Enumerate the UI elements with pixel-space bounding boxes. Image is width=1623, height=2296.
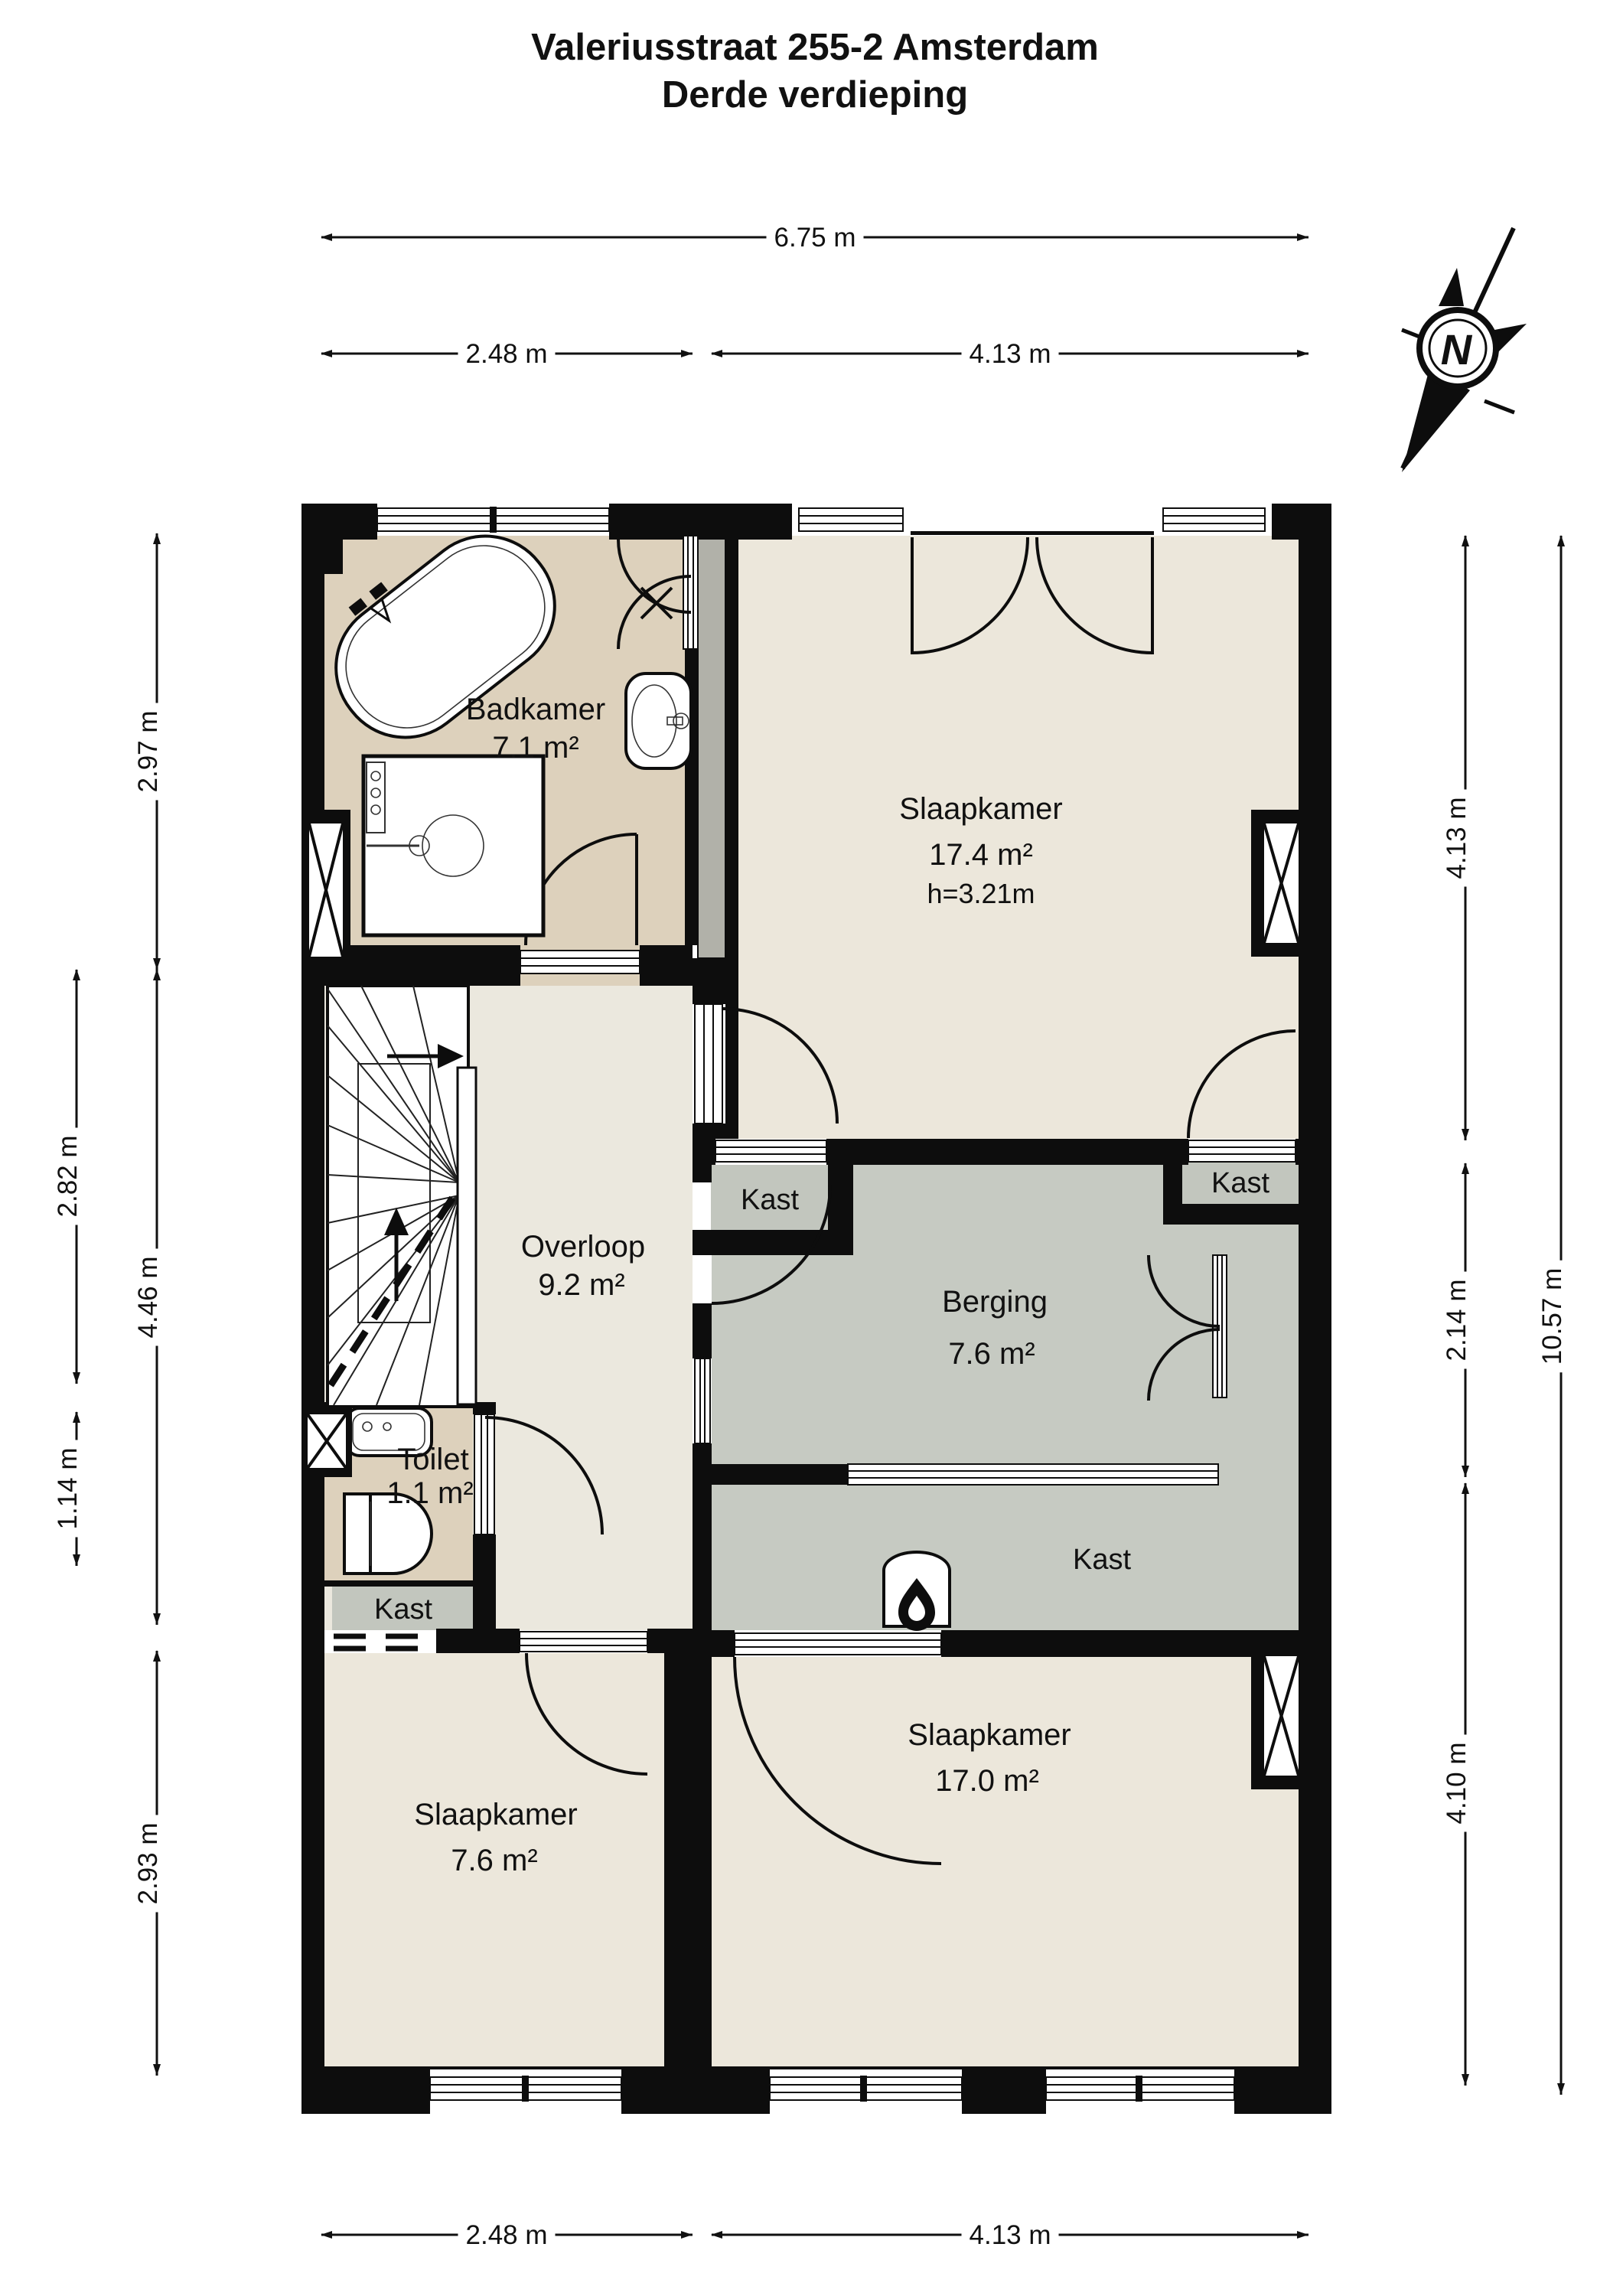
berging-area: 7.6 m² (948, 1337, 1035, 1371)
dim-bottom-right: 4.13 m (970, 2220, 1051, 2250)
bathroom-sink (626, 673, 691, 768)
kast-dashed-front (334, 1636, 438, 1649)
slaapkamer-left-area: 7.6 m² (451, 1844, 537, 1877)
kast-top-left-label: Kast (741, 1184, 799, 1216)
badkamer-label: Badkamer (466, 693, 605, 726)
toilet-label: Toilet (397, 1443, 468, 1476)
kast-berging-label: Kast (1073, 1544, 1131, 1576)
dim-left-mid: 4.46 m (133, 1257, 163, 1339)
overloop-area: 9.2 m² (538, 1268, 624, 1302)
page-title: Valeriusstraat 255-2 Amsterdam Derde ver… (531, 27, 1099, 116)
badkamer-area: 7.1 m² (492, 731, 578, 765)
boiler (884, 1552, 950, 1631)
shaft-right-top (1251, 810, 1301, 957)
dim-right-top: 4.13 m (1442, 797, 1471, 879)
floor-plan-page: Valeriusstraat 255-2 Amsterdam Derde ver… (0, 0, 1623, 2296)
toilet-area: 1.1 m² (386, 1476, 473, 1510)
dim-right-mid: 2.14 m (1442, 1280, 1471, 1362)
kast-bottom-left-label: Kast (374, 1593, 432, 1626)
shaft-right-bottom (1251, 1642, 1301, 1789)
dim-left-outer-top: 2.82 m (53, 1136, 83, 1218)
stair-handrail (458, 1068, 476, 1404)
dim-top-left: 2.48 m (466, 339, 548, 369)
dim-top-right: 4.13 m (970, 339, 1051, 369)
slaapkamer-right-area: 17.0 m² (935, 1764, 1039, 1798)
dim-left-outer-bottom: 1.14 m (53, 1448, 83, 1530)
slaapkamer-left-label: Slaapkamer (414, 1798, 577, 1831)
shaft-left-stairs (301, 810, 350, 970)
slaapkamer-top-label: Slaapkamer (899, 792, 1062, 826)
floor-plan-drawing: Valeriusstraat 255-2 Amsterdam Derde ver… (0, 0, 1623, 2296)
slaapkamer-top-area: 17.4 m² (929, 838, 1033, 872)
compass-rose: N (1402, 228, 1527, 472)
title-line-1: Valeriusstraat 255-2 Amsterdam (531, 27, 1099, 68)
berging-label: Berging (942, 1285, 1048, 1319)
staircase (328, 986, 476, 1407)
dim-left-top: 2.97 m (133, 711, 163, 793)
shower (363, 756, 543, 935)
slaapkamer-top-height: h=3.21m (927, 878, 1035, 909)
overloop-label: Overloop (521, 1230, 645, 1264)
dim-bottom-left: 2.48 m (466, 2220, 548, 2250)
slaapkamer-top-floor (738, 536, 1299, 1139)
dim-top-total: 6.75 m (774, 223, 856, 253)
shaft-left-toilet (301, 1405, 352, 1477)
slaapkamer-right-label: Slaapkamer (908, 1718, 1071, 1752)
duct-channel (698, 536, 725, 958)
title-line-2: Derde verdieping (662, 74, 968, 116)
kast-top-right-label: Kast (1211, 1167, 1269, 1199)
dim-right-bottom: 4.10 m (1442, 1743, 1471, 1825)
dim-left-bottom: 2.93 m (133, 1823, 163, 1905)
dim-right-total: 10.57 m (1537, 1268, 1567, 1365)
north-label: N (1441, 325, 1473, 373)
